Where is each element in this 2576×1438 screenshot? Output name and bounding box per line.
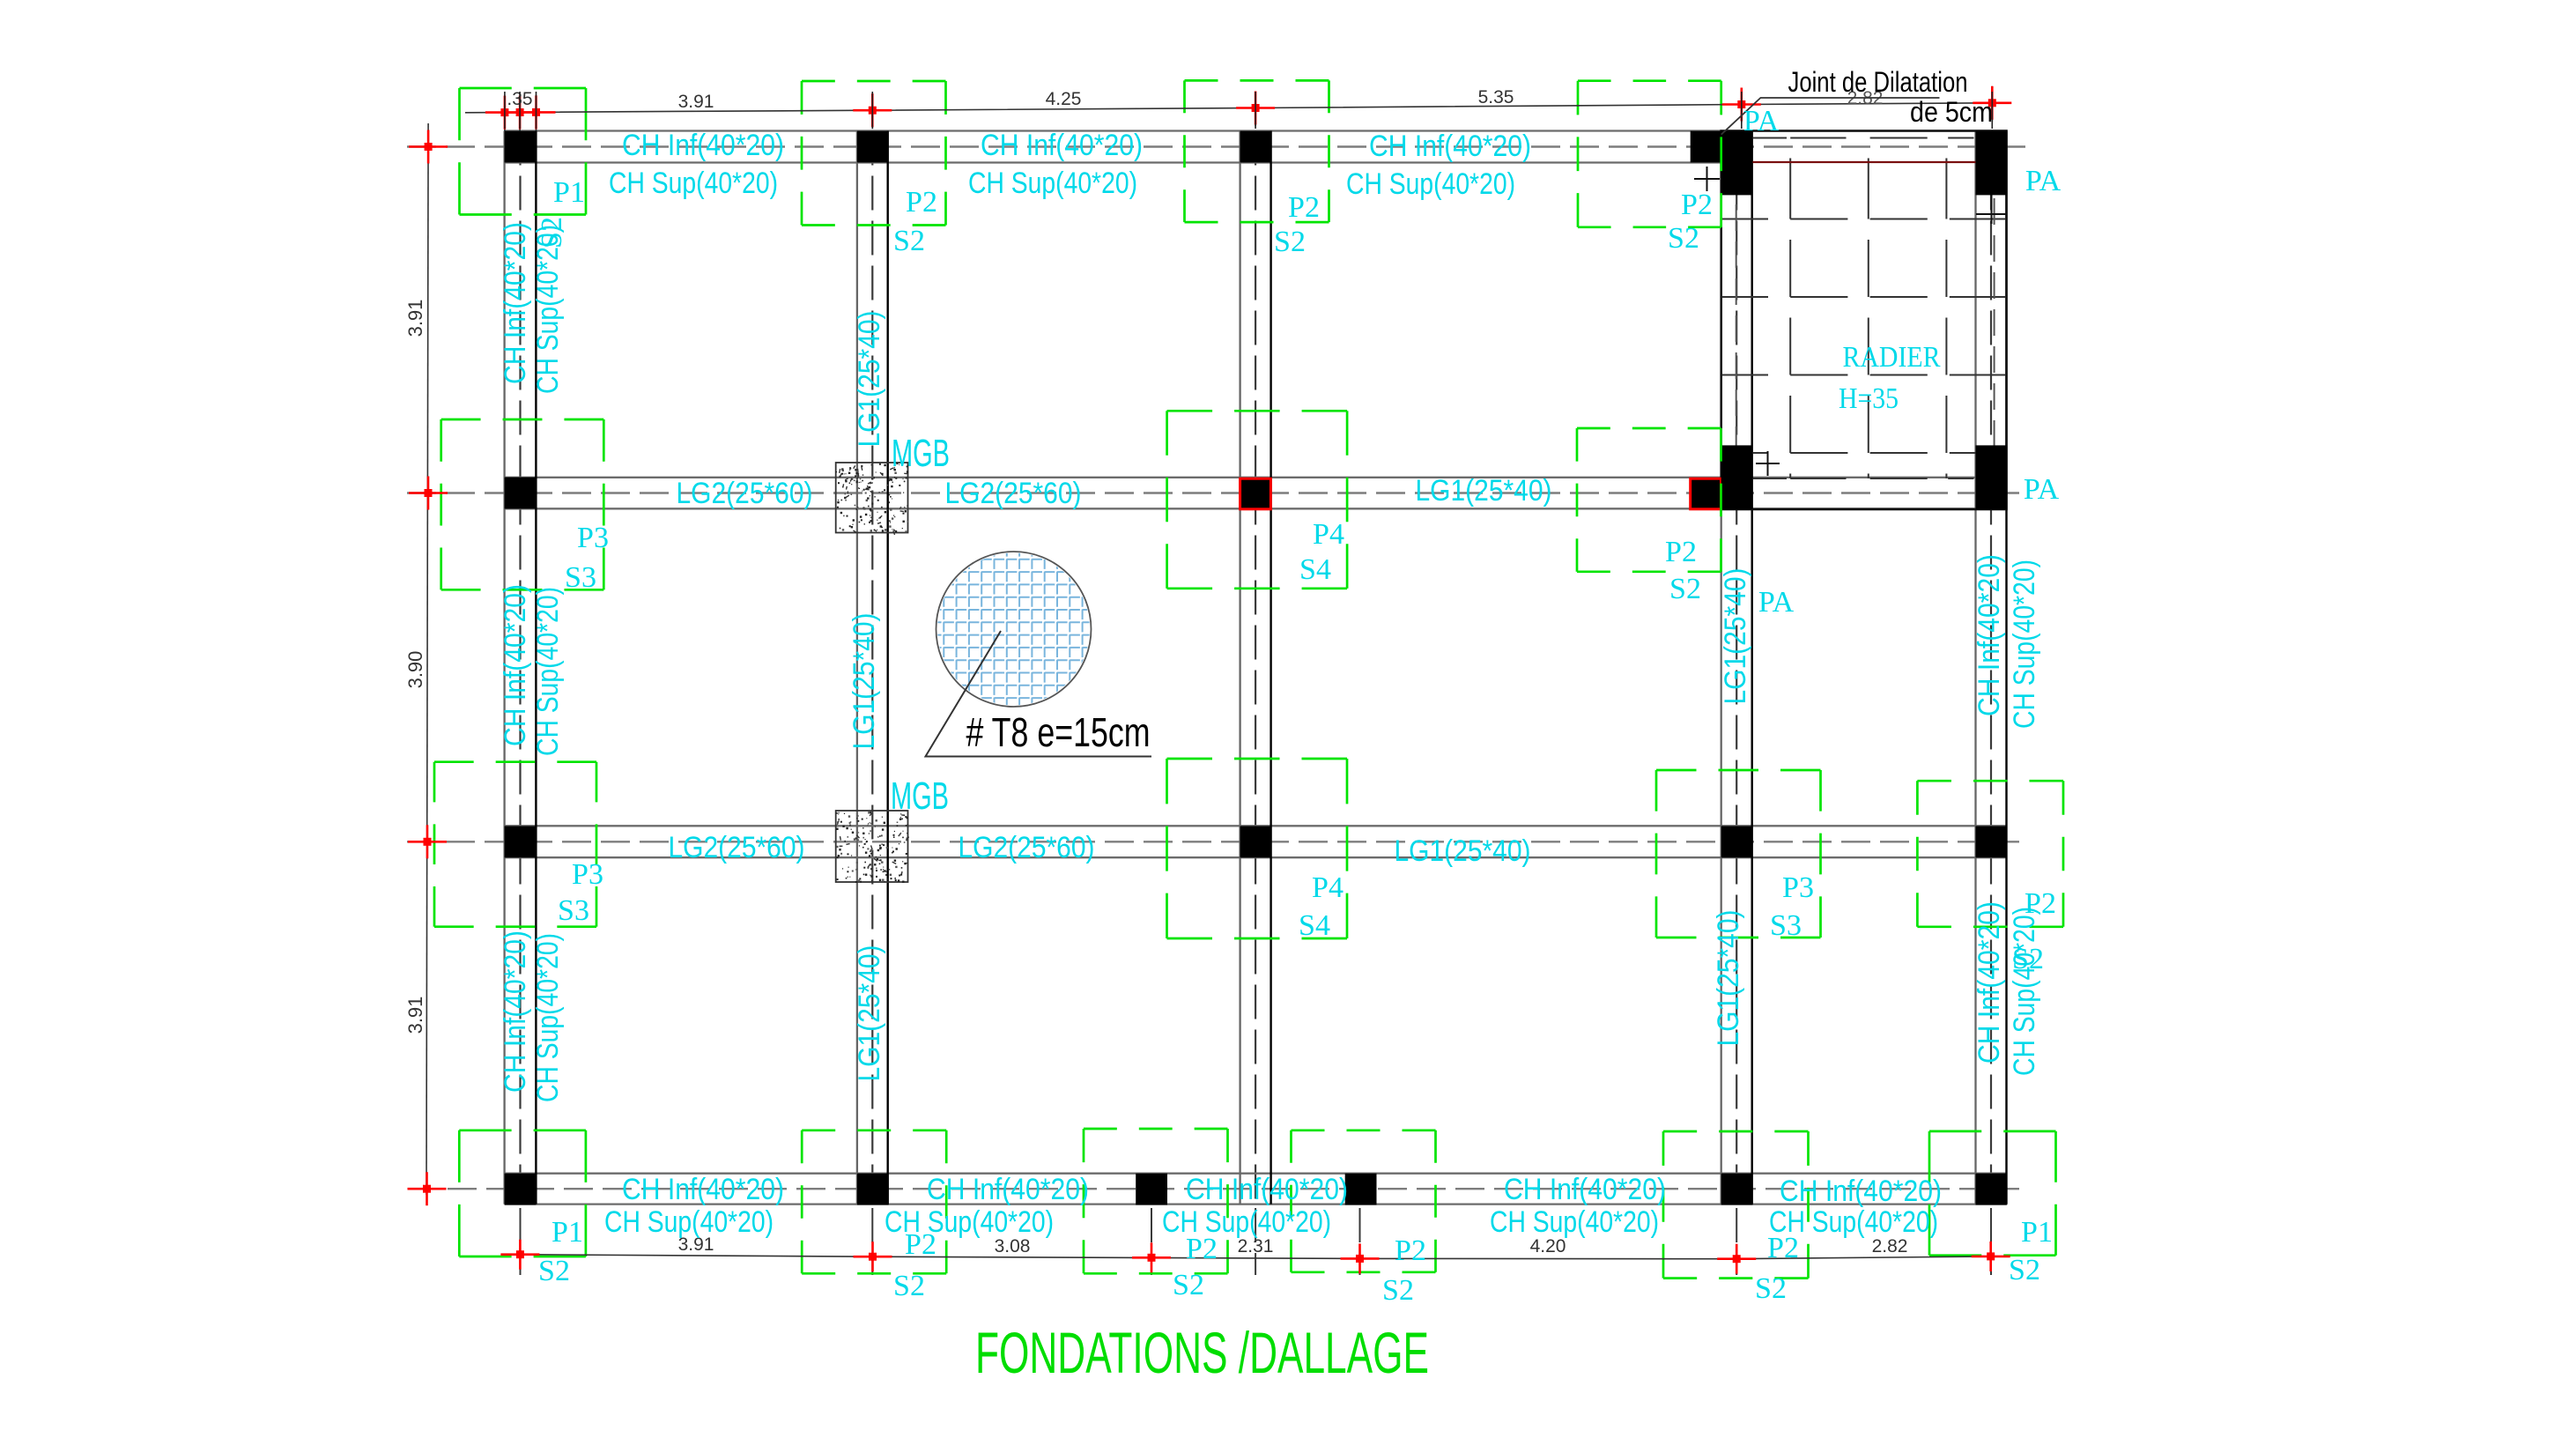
svg-text:S2: S2	[1382, 1274, 1414, 1307]
svg-text:3.08: 3.08	[995, 1236, 1031, 1256]
svg-text:P3: P3	[1782, 871, 1814, 904]
svg-text:P4: P4	[1312, 871, 1344, 904]
svg-text:CH Sup(40*20): CH Sup(40*20)	[968, 167, 1137, 200]
svg-text:de 5cm: de 5cm	[1910, 96, 1993, 128]
svg-text:P1: P1	[551, 1216, 583, 1249]
svg-text:H=35: H=35	[1839, 382, 1899, 415]
svg-text:S2: S2	[893, 225, 925, 257]
svg-text:2.31: 2.31	[1238, 1236, 1274, 1256]
svg-text:PA: PA	[2025, 165, 2062, 197]
svg-text:S4: S4	[1299, 553, 1331, 586]
svg-text:MGB: MGB	[892, 432, 950, 475]
svg-text:S2: S2	[893, 1270, 925, 1302]
svg-text:LG2(25*60): LG2(25*60)	[945, 477, 1082, 510]
svg-text:P2: P2	[1681, 189, 1713, 221]
svg-text:P2: P2	[1665, 536, 1697, 568]
svg-text:S3: S3	[1770, 909, 1802, 942]
svg-text:CH Inf(40*20): CH Inf(40*20)	[1369, 130, 1531, 163]
svg-text:CH Sup(40*20): CH Sup(40*20)	[609, 167, 778, 200]
svg-text:4.20: 4.20	[1530, 1236, 1566, 1256]
svg-text:FONDATIONS /DALLAGE: FONDATIONS /DALLAGE	[975, 1320, 1429, 1385]
svg-text:MGB: MGB	[891, 775, 949, 818]
svg-text:P2: P2	[2025, 887, 2056, 920]
svg-text:S2: S2	[2009, 1254, 2040, 1286]
svg-text:S3: S3	[558, 894, 589, 927]
svg-text:S2: S2	[1668, 222, 1699, 255]
svg-text:S4: S4	[1299, 909, 1330, 942]
svg-text:CH Inf(40*20): CH Inf(40*20)	[622, 1173, 784, 1206]
svg-text:P1: P1	[553, 176, 585, 209]
svg-text:LG1(25*40): LG1(25*40)	[853, 311, 886, 448]
svg-text:LG1(25*40): LG1(25*40)	[848, 613, 881, 750]
svg-text:P2: P2	[906, 186, 937, 219]
svg-text:P3: P3	[577, 522, 609, 554]
svg-text:CH Inf(40*20): CH Inf(40*20)	[1780, 1175, 1942, 1208]
svg-text:LG1(25*40): LG1(25*40)	[853, 945, 886, 1082]
svg-text:LG2(25*60): LG2(25*60)	[959, 831, 1095, 864]
svg-text:CH Sup(40*20): CH Sup(40*20)	[1346, 167, 1515, 201]
svg-text:5.35: 5.35	[1478, 87, 1514, 107]
svg-text:S2: S2	[536, 217, 568, 248]
svg-text:CH Inf(40*20): CH Inf(40*20)	[1973, 901, 2006, 1064]
svg-text:CH Sup(40*20): CH Sup(40*20)	[1490, 1205, 1659, 1239]
svg-text:3.91: 3.91	[678, 92, 714, 112]
svg-text:CH Sup(40*20): CH Sup(40*20)	[531, 225, 565, 394]
svg-text:PA: PA	[1743, 105, 1780, 137]
svg-text:LG1(25*40): LG1(25*40)	[1719, 568, 1752, 705]
svg-text:4.25: 4.25	[1046, 89, 1082, 109]
svg-text:P2: P2	[905, 1228, 936, 1261]
svg-text:CH Inf(40*20): CH Inf(40*20)	[622, 129, 784, 162]
svg-text:P4: P4	[1313, 518, 1344, 551]
svg-text:S2: S2	[538, 1255, 570, 1287]
svg-text:LG2(25*60): LG2(25*60)	[677, 477, 813, 510]
svg-text:CH Inf(40*20): CH Inf(40*20)	[499, 584, 532, 746]
svg-text:# T8 e=15cm: # T8 e=15cm	[966, 709, 1151, 755]
svg-text:CH Inf(40*20): CH Inf(40*20)	[1504, 1173, 1666, 1206]
svg-text:CH Inf(40*20): CH Inf(40*20)	[1186, 1173, 1348, 1206]
svg-text:P2: P2	[1395, 1234, 1426, 1267]
svg-text:S2: S2	[2012, 943, 2044, 975]
svg-text:CH Sup(40*20): CH Sup(40*20)	[531, 933, 565, 1102]
svg-text:S2: S2	[1173, 1269, 1204, 1301]
svg-text:CH Inf(40*20): CH Inf(40*20)	[499, 930, 532, 1093]
svg-text:P1: P1	[2021, 1216, 2053, 1249]
svg-text:CH Inf(40*20): CH Inf(40*20)	[981, 129, 1143, 162]
svg-text:LG2(25*60): LG2(25*60)	[669, 831, 805, 864]
svg-text:S2: S2	[1669, 573, 1701, 605]
svg-text:LG1(25*40): LG1(25*40)	[1416, 474, 1552, 508]
svg-text:P2: P2	[1767, 1232, 1799, 1264]
svg-text:CH Inf(40*20): CH Inf(40*20)	[499, 222, 532, 384]
svg-text:CH Sup(40*20): CH Sup(40*20)	[531, 587, 565, 756]
svg-text:S2: S2	[1755, 1272, 1787, 1305]
svg-text:PA: PA	[1758, 586, 1795, 619]
svg-text:Joint de Dilatation: Joint de Dilatation	[1788, 66, 1968, 98]
svg-text:CH Inf(40*20): CH Inf(40*20)	[1973, 554, 2006, 716]
svg-text:CH Sup(40*20): CH Sup(40*20)	[604, 1205, 774, 1239]
svg-text:3.90: 3.90	[404, 651, 426, 689]
svg-text:PA: PA	[2024, 473, 2060, 506]
svg-text:3.91: 3.91	[404, 300, 426, 337]
svg-text:S2: S2	[1274, 226, 1306, 258]
svg-text:RADIER: RADIER	[1843, 341, 1941, 374]
svg-text:3.91: 3.91	[404, 997, 426, 1034]
svg-text:P2: P2	[1288, 191, 1320, 224]
svg-text:CH Sup(40*20): CH Sup(40*20)	[2008, 560, 2041, 729]
svg-text:P2: P2	[1186, 1233, 1218, 1265]
svg-text:2.82: 2.82	[1872, 1236, 1908, 1256]
svg-text:LG1(25*40): LG1(25*40)	[1395, 834, 1531, 868]
svg-text:LG1(25*40): LG1(25*40)	[1712, 910, 1745, 1047]
svg-text:CH Inf(40*20): CH Inf(40*20)	[927, 1173, 1089, 1206]
svg-text:CH Sup(40*20): CH Sup(40*20)	[2008, 907, 2041, 1076]
svg-text:S3: S3	[565, 561, 596, 594]
svg-text:P3: P3	[572, 858, 603, 891]
